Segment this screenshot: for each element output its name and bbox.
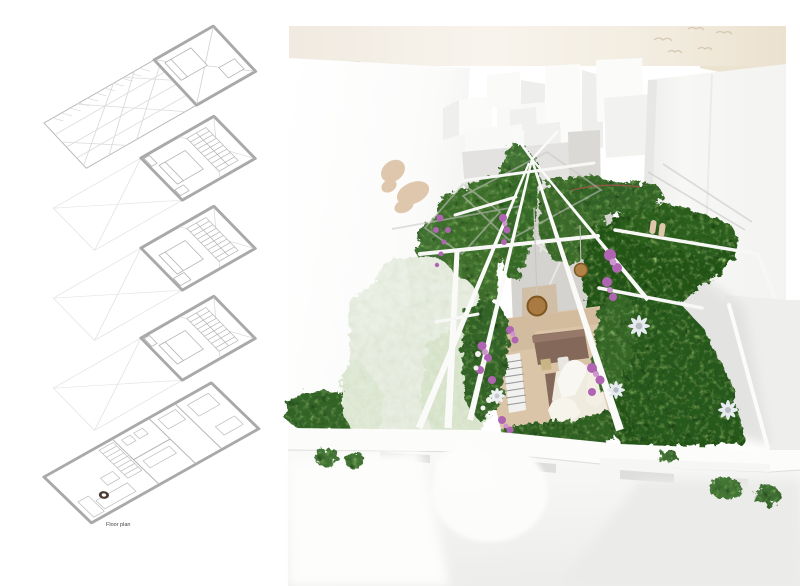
svg-text:Floor plan: Floor plan bbox=[106, 522, 130, 528]
